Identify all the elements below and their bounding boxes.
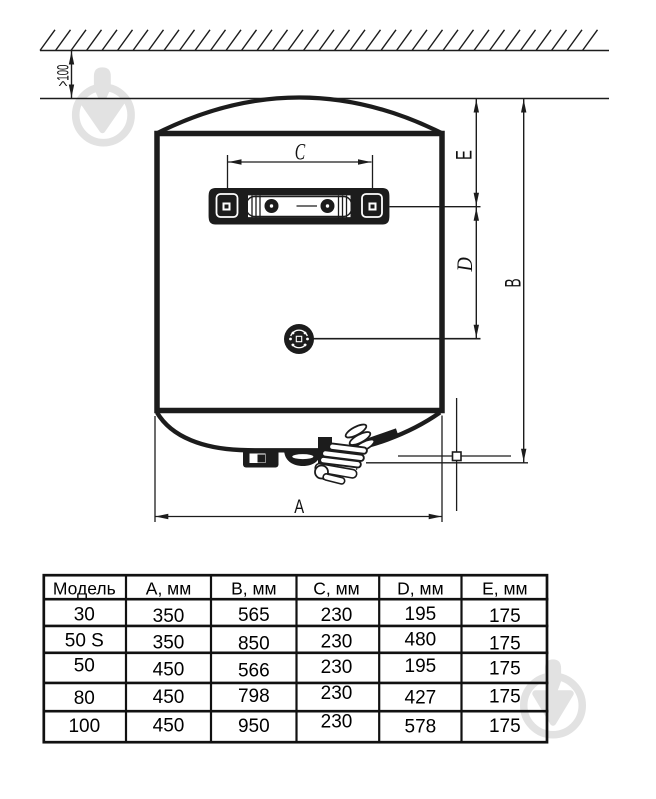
svg-text:175: 175 (489, 634, 521, 655)
svg-text:C, мм: C, мм (313, 579, 359, 599)
svg-text:566: 566 (238, 661, 270, 682)
svg-text:798: 798 (238, 686, 270, 707)
svg-text:Модель: Модель (53, 579, 116, 599)
svg-text:A, мм: A, мм (146, 579, 191, 599)
svg-text:480: 480 (405, 630, 437, 651)
svg-text:D, мм: D, мм (397, 579, 443, 599)
svg-text:450: 450 (153, 716, 185, 737)
svg-text:B, мм: B, мм (231, 579, 276, 599)
svg-text:195: 195 (405, 656, 437, 677)
svg-text:50 S: 50 S (65, 631, 104, 652)
svg-text:50: 50 (74, 655, 95, 676)
svg-text:175: 175 (489, 686, 521, 707)
svg-text:100: 100 (68, 716, 100, 737)
svg-text:D: D (452, 257, 477, 272)
svg-text:565: 565 (238, 605, 270, 626)
svg-text:230: 230 (321, 632, 353, 653)
svg-text:450: 450 (153, 659, 185, 680)
svg-text:175: 175 (489, 716, 521, 737)
svg-text:30: 30 (74, 605, 95, 626)
svg-text:950: 950 (238, 716, 270, 737)
svg-text:230: 230 (321, 605, 353, 626)
svg-text:427: 427 (405, 688, 437, 709)
svg-text:80: 80 (74, 688, 95, 709)
svg-text:850: 850 (238, 634, 270, 655)
svg-text:230: 230 (321, 683, 353, 704)
svg-text:175: 175 (489, 659, 521, 680)
svg-text:578: 578 (405, 717, 437, 738)
svg-text:A: A (294, 496, 304, 517)
svg-text:230: 230 (321, 711, 353, 732)
svg-text:>100: >100 (54, 64, 72, 86)
svg-text:B: B (500, 278, 525, 287)
svg-text:350: 350 (153, 633, 185, 654)
svg-text:195: 195 (405, 604, 437, 625)
svg-text:350: 350 (153, 606, 185, 627)
svg-text:450: 450 (153, 687, 185, 708)
svg-text:E, мм: E, мм (482, 579, 527, 599)
svg-text:C: C (295, 140, 306, 166)
svg-text:175: 175 (489, 606, 521, 627)
svg-text:230: 230 (321, 657, 353, 678)
svg-text:E: E (452, 150, 477, 160)
